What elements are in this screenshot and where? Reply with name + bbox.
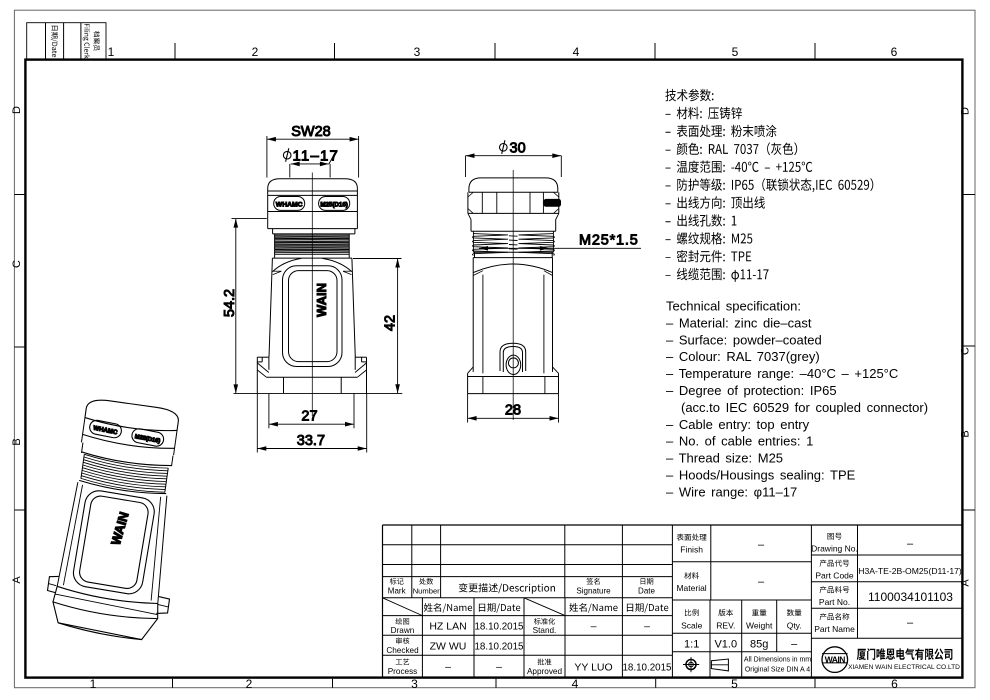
svg-text:1: 1 xyxy=(90,677,97,691)
svg-text:Scale: Scale xyxy=(681,621,703,631)
svg-text:Number: Number xyxy=(413,587,440,596)
svg-text:– Colour: RAL 7037(grey): – Colour: RAL 7037(grey) xyxy=(666,349,820,364)
svg-text:WAIN: WAIN xyxy=(314,283,329,317)
svg-text:M25*1.5: M25*1.5 xyxy=(579,233,639,249)
svg-text:1: 1 xyxy=(108,45,115,59)
svg-text:WHMC: WHMC xyxy=(545,201,561,207)
svg-text:Finish: Finish xyxy=(680,545,703,555)
svg-text:–: – xyxy=(496,661,502,673)
svg-text:27: 27 xyxy=(301,409,317,425)
svg-text:5: 5 xyxy=(731,677,738,691)
svg-text:1:1: 1:1 xyxy=(684,639,699,651)
svg-text:– Cable entry: top entry: – Cable entry: top entry xyxy=(666,417,810,432)
svg-text:Drawn: Drawn xyxy=(391,626,415,635)
svg-text:3: 3 xyxy=(414,45,421,59)
svg-text:– Material: zinc die–cast: – Material: zinc die–cast xyxy=(666,315,812,330)
svg-text:B: B xyxy=(960,430,972,437)
svg-text:– Degree of protection: IP: – Degree of protection: IP65 xyxy=(666,383,837,398)
svg-text:1100034101103: 1100034101103 xyxy=(868,590,953,604)
svg-text:Approved: Approved xyxy=(527,667,562,676)
svg-text:–: – xyxy=(644,621,650,633)
svg-text:C: C xyxy=(11,260,23,268)
svg-text:– Thread size: M25: – Thread size: M25 xyxy=(666,451,783,466)
svg-text:B: B xyxy=(11,438,23,445)
svg-text:2: 2 xyxy=(252,45,259,59)
svg-text:Weight: Weight xyxy=(746,621,773,631)
svg-text:WAIN: WAIN xyxy=(825,654,846,664)
svg-text:Part Name: Part Name xyxy=(814,624,855,634)
svg-text:–: – xyxy=(791,639,798,651)
svg-text:42: 42 xyxy=(383,315,399,331)
svg-text:Technical specification:: Technical specification: xyxy=(666,299,801,314)
svg-text:Date: Date xyxy=(638,587,655,596)
svg-text:–: – xyxy=(758,539,765,551)
svg-text:Process: Process xyxy=(388,667,418,676)
svg-text:– Hoods/Housings sealing: T: – Hoods/Housings sealing: TPE xyxy=(666,468,856,483)
svg-text:–: – xyxy=(591,621,597,633)
svg-text:18.10.2015: 18.10.2015 xyxy=(474,641,524,652)
svg-text:V1.0: V1.0 xyxy=(714,639,737,651)
svg-text:4: 4 xyxy=(573,45,580,59)
svg-text:28: 28 xyxy=(505,403,521,419)
svg-text:Signature: Signature xyxy=(576,587,611,596)
svg-text:–: – xyxy=(907,538,914,550)
svg-text:A: A xyxy=(11,576,23,584)
svg-text:Original Size DIN A 4: Original Size DIN A 4 xyxy=(745,667,810,674)
svg-text:18.10.2015: 18.10.2015 xyxy=(474,622,524,633)
svg-text:Part No.: Part No. xyxy=(819,597,850,607)
svg-text:H3A-TE-2B-OM25(D11-17): H3A-TE-2B-OM25(D11-17) xyxy=(858,566,962,576)
svg-text:REV.: REV. xyxy=(716,621,735,631)
svg-text:C: C xyxy=(960,347,972,355)
svg-text:54.2: 54.2 xyxy=(222,289,238,317)
svg-text:– No. of cable entries: 1: – No. of cable entries: 1 xyxy=(666,434,813,449)
svg-text:YY LUO: YY LUO xyxy=(574,661,612,673)
svg-text:18.10.2015: 18.10.2015 xyxy=(622,662,672,673)
svg-text:–: – xyxy=(445,661,451,673)
svg-text:Checked: Checked xyxy=(386,646,419,655)
svg-text:XIAMEN WAIN ELECTRICAL CO.LTD: XIAMEN WAIN ELECTRICAL CO.LTD xyxy=(848,664,960,671)
svg-text:–: – xyxy=(758,576,765,588)
svg-text:D: D xyxy=(960,107,972,115)
svg-text:30: 30 xyxy=(510,141,526,157)
svg-text:Mark: Mark xyxy=(388,587,407,596)
svg-text:33.7: 33.7 xyxy=(297,433,325,449)
svg-text:6: 6 xyxy=(891,45,898,59)
svg-text:– Wire range: φ11–17: – Wire range: φ11–17 xyxy=(666,484,797,499)
svg-text:(acc.to IEC 60529 for coup: (acc.to IEC 60529 for coupled connector) xyxy=(681,400,928,415)
svg-text:–: – xyxy=(907,617,914,629)
svg-text:M25(D16): M25(D16) xyxy=(320,201,348,208)
svg-text:Drawing No.: Drawing No. xyxy=(811,544,858,554)
svg-text:A: A xyxy=(960,579,972,587)
svg-text:ZW WU: ZW WU xyxy=(430,640,467,652)
svg-text:SW28: SW28 xyxy=(291,124,331,140)
svg-text:6: 6 xyxy=(891,677,898,691)
svg-text:WHAMC: WHAMC xyxy=(276,201,303,208)
svg-text:– Surface: powder–coated: – Surface: powder–coated xyxy=(666,332,822,347)
svg-text:3: 3 xyxy=(411,677,418,691)
svg-text:Stand.: Stand. xyxy=(533,626,557,635)
svg-text:2: 2 xyxy=(246,677,253,691)
svg-text:All Dimensions in mm: All Dimensions in mm xyxy=(744,657,811,664)
svg-text:5: 5 xyxy=(732,45,739,59)
svg-text:– Temperature range: –40°C: – Temperature range: –40°C – +125°C xyxy=(666,366,898,381)
svg-text:D: D xyxy=(11,106,23,114)
svg-text:HZ LAN: HZ LAN xyxy=(429,621,466,633)
svg-text:Qty.: Qty. xyxy=(787,621,802,631)
svg-text:4: 4 xyxy=(572,677,579,691)
svg-text:Part Code: Part Code xyxy=(815,571,854,581)
svg-text:85g: 85g xyxy=(750,639,768,651)
svg-text:Material: Material xyxy=(676,583,706,593)
